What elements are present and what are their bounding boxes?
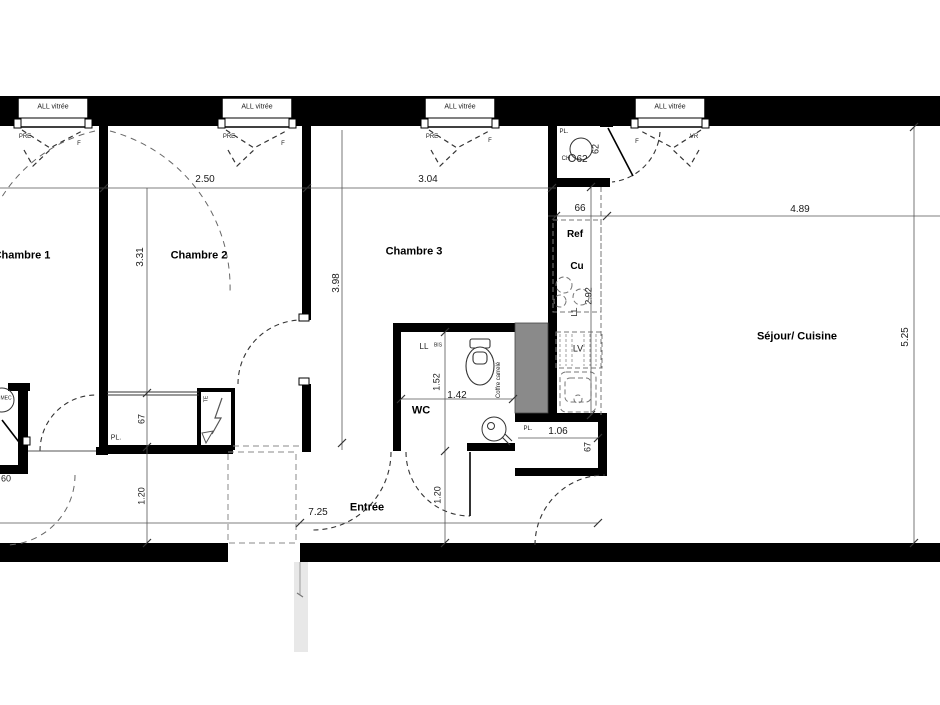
label-te: TE bbox=[205, 396, 210, 402]
window-3-pre: PRE bbox=[426, 134, 438, 140]
room-sejour-cuisine: Séjour/ Cuisine bbox=[757, 332, 837, 343]
label-pl-closet-entree: PL. bbox=[523, 426, 532, 432]
sink-basin bbox=[565, 378, 591, 402]
wall-wc-top bbox=[393, 323, 515, 332]
wall-niche-bottom bbox=[548, 178, 610, 187]
window-3 bbox=[421, 98, 499, 128]
label-cu: Cu bbox=[570, 262, 583, 272]
window-1-f: F bbox=[77, 141, 81, 147]
wall-wc-left bbox=[393, 323, 401, 451]
window-3-label: ALL vitrée bbox=[444, 104, 475, 111]
dim-1-42: 1.42 bbox=[447, 391, 466, 401]
dim-2-50: 2.50 bbox=[195, 175, 214, 185]
door-jambs bbox=[23, 314, 309, 445]
room-chambre-3: Chambre 3 bbox=[386, 247, 443, 258]
entree-cupboard-outline bbox=[228, 452, 296, 543]
dim-1-06: 1.06 bbox=[548, 427, 567, 437]
window-2 bbox=[218, 98, 296, 128]
window-3-f: F bbox=[488, 138, 492, 144]
label-ref: Ref bbox=[567, 230, 583, 240]
dim-2-92: 2.92 bbox=[585, 287, 594, 305]
wall-ch2-ch3-upper bbox=[302, 126, 311, 320]
window-1-label: ALL vitrée bbox=[37, 104, 68, 111]
dim-67-closet-ch2: 67 bbox=[138, 414, 147, 424]
coffre-carrele-duct bbox=[515, 323, 548, 413]
dim-60: 60 bbox=[1, 475, 11, 484]
dim-4-89: 4.89 bbox=[790, 205, 809, 215]
label-bis: BIS bbox=[434, 344, 442, 349]
window-1 bbox=[14, 98, 92, 128]
door-leaf-niche bbox=[608, 128, 633, 176]
dashed-outlines bbox=[228, 446, 300, 543]
window-4-f: F bbox=[635, 139, 639, 145]
room-wc: WC bbox=[412, 406, 430, 417]
window-4 bbox=[631, 98, 709, 128]
room-entree: Entrée bbox=[350, 503, 384, 514]
wall-wc-bottom-stub bbox=[467, 443, 515, 451]
exterior-ghost-strip bbox=[294, 562, 308, 652]
wall-ch2-ch3-lower bbox=[302, 384, 311, 452]
room-chambre-1: Chambre 1 bbox=[0, 251, 50, 262]
label-ll-wc: LL bbox=[420, 343, 429, 351]
label-lv: LV bbox=[573, 345, 583, 354]
window-2-label: ALL vitrée bbox=[241, 104, 272, 111]
window-4-vr: VR bbox=[690, 134, 698, 140]
dim-3-31: 3.31 bbox=[136, 247, 146, 266]
dimension-ticks bbox=[100, 123, 918, 597]
wall-closet-entree-top bbox=[515, 413, 607, 422]
wall-bottom-right bbox=[300, 543, 940, 562]
door-leaves bbox=[2, 128, 633, 516]
door-arc-entree bbox=[535, 475, 605, 545]
wall-bottom-left bbox=[0, 543, 228, 562]
wall-niche-right-jamb bbox=[600, 110, 613, 127]
window-2-f: F bbox=[281, 141, 285, 147]
floor-plan: ALL vitréeALL vitréeALL vitréeALL vitrée… bbox=[0, 0, 940, 705]
dim-66: 66 bbox=[574, 204, 585, 214]
chambre1-window-swing-arcs bbox=[0, 131, 230, 545]
label-pl-closet-ch2: PL. bbox=[111, 435, 122, 442]
wall-ch3-kitchen bbox=[548, 126, 557, 413]
window-2-pre: PRE bbox=[223, 134, 235, 140]
sink-drain bbox=[574, 395, 582, 403]
window-1-pre: PRE bbox=[19, 134, 31, 140]
label-ll-kitchen: LL bbox=[571, 308, 579, 317]
dim-67-closet-entree: 67 bbox=[584, 442, 593, 452]
label-pl-niche: PL. bbox=[559, 129, 568, 135]
door-arc-wc bbox=[406, 452, 470, 516]
toilet-icon bbox=[466, 339, 494, 385]
room-chambre-2: Chambre 2 bbox=[171, 251, 228, 262]
door-arc-chambre1 bbox=[40, 395, 96, 451]
kitchen-units bbox=[553, 187, 602, 415]
dim-1-20-left: 1.20 bbox=[138, 487, 147, 505]
dim-3-98: 3.98 bbox=[332, 273, 342, 292]
dim-5-25: 5.25 bbox=[901, 327, 911, 346]
wall-ch1-ch2 bbox=[99, 126, 108, 447]
dim-1-52: 1.52 bbox=[433, 373, 442, 391]
wall-closet-entree-bottom bbox=[515, 468, 607, 476]
hob-burner bbox=[556, 277, 572, 293]
wall-closet-entree-right bbox=[598, 413, 607, 476]
label-ch: CH bbox=[562, 156, 571, 162]
dim-62: 62 bbox=[576, 155, 587, 165]
dim-7-25: 7.25 bbox=[308, 508, 327, 518]
door-arcs bbox=[40, 132, 660, 545]
dim-1-20-right: 1.20 bbox=[434, 486, 443, 504]
closet-ch2-front bbox=[107, 392, 199, 395]
label-mec: MEC bbox=[0, 397, 11, 402]
wall-smallroom-top-corner bbox=[8, 383, 30, 391]
wall-smallroom-right bbox=[18, 388, 28, 466]
dim-62-rot: 62 bbox=[592, 144, 601, 154]
label-coffre-carrele: Coffre carrelé bbox=[496, 362, 502, 398]
hand-sink-icon bbox=[482, 417, 512, 445]
dim-3-04: 3.04 bbox=[418, 175, 437, 185]
window-4-label: ALL vitrée bbox=[654, 104, 685, 111]
door-arc-chambre3 bbox=[313, 452, 391, 530]
door-arc-chambre2 bbox=[238, 320, 302, 384]
